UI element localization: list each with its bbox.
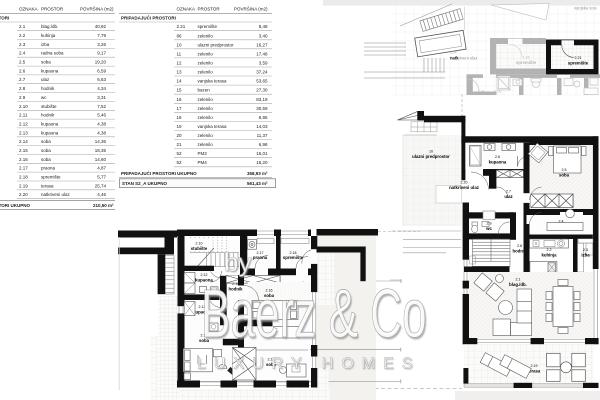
svg-text:15,20: 15,20 (256, 160, 268, 165)
svg-text:2.7: 2.7 (19, 77, 26, 82)
svg-text:PRIPADAJUĆI PROSTORI: PRIPADAJUĆI PROSTORI (121, 14, 176, 21)
svg-text:PM3: PM3 (198, 151, 208, 156)
svg-text:PM4: PM4 (198, 160, 208, 165)
svg-text:stubište: stubište (191, 246, 208, 251)
svg-text:3,26: 3,26 (97, 42, 106, 47)
svg-text:2.14: 2.14 (19, 139, 28, 144)
svg-text:ulaz: ulaz (41, 77, 50, 82)
svg-text:zelenilo: zelenilo (198, 61, 214, 66)
svg-text:2.18: 2.18 (19, 175, 28, 180)
svg-text:40,92: 40,92 (95, 24, 107, 29)
svg-text:1.11: 1.11 (478, 90, 484, 94)
svg-text:52: 52 (177, 151, 183, 156)
svg-text:zelenilo: zelenilo (198, 106, 214, 111)
svg-text:bazen: bazen (198, 88, 211, 93)
svg-text:1.1/2: 1.1/2 (494, 90, 502, 94)
svg-text:7,52: 7,52 (97, 104, 106, 109)
svg-text:2.10: 2.10 (19, 104, 28, 109)
svg-text:4,46: 4,46 (97, 192, 106, 197)
svg-text:5,77: 5,77 (97, 175, 106, 180)
svg-text:2.15: 2.15 (19, 148, 28, 153)
svg-text:spremište: spremište (283, 255, 304, 260)
svg-text:9,17: 9,17 (97, 51, 106, 56)
svg-text:17: 17 (177, 106, 183, 111)
svg-text:3,31: 3,31 (97, 95, 106, 100)
svg-text:14,60: 14,60 (95, 157, 107, 162)
svg-text:17,48: 17,48 (256, 51, 268, 56)
svg-text:18: 18 (177, 115, 183, 120)
svg-text:210,50 m²: 210,50 m² (93, 203, 114, 208)
svg-text:blag./db.: blag./db. (509, 282, 527, 287)
svg-text:vanjska terasa: vanjska terasa (198, 79, 228, 84)
svg-text:kuhinja: kuhinja (41, 33, 56, 38)
svg-text:4,34: 4,34 (97, 86, 106, 91)
svg-text:1.14: 1.14 (450, 51, 457, 55)
svg-text:soba: soba (41, 148, 51, 153)
svg-text:2.18: 2.18 (290, 251, 297, 255)
svg-text:1.15: 1.15 (523, 56, 530, 60)
svg-text:PROSTORI: PROSTORI (0, 16, 9, 21)
svg-text:2.17: 2.17 (257, 251, 264, 255)
svg-text:soba: soba (41, 157, 51, 162)
svg-text:4,38: 4,38 (97, 130, 106, 135)
svg-text:6,59: 6,59 (97, 68, 106, 73)
svg-text:2.17: 2.17 (19, 166, 28, 171)
svg-text:2.3: 2.3 (19, 42, 26, 47)
svg-text:2.2: 2.2 (19, 33, 26, 38)
svg-text:stubište: stubište (41, 104, 57, 109)
svg-text:11: 11 (177, 51, 182, 56)
svg-text:PROSTORI UKUPNO: PROSTORI UKUPNO (0, 203, 30, 208)
svg-text:5,46: 5,46 (97, 113, 106, 118)
svg-text:16: 16 (177, 97, 183, 102)
svg-text:izba: izba (581, 252, 590, 257)
svg-text:2.4: 2.4 (19, 51, 26, 56)
svg-text:zelenilo: zelenilo (198, 115, 214, 120)
svg-text:soba: soba (41, 60, 51, 65)
svg-text:kupaona: kupaona (41, 68, 59, 73)
svg-text:2.19: 2.19 (19, 183, 28, 188)
svg-text:2.13: 2.13 (19, 130, 28, 135)
svg-text:14: 14 (177, 79, 183, 84)
svg-text:2.6: 2.6 (19, 68, 26, 73)
svg-text:zelenilo: zelenilo (198, 133, 214, 138)
svg-text:2.10: 2.10 (196, 242, 203, 246)
svg-text:4,38: 4,38 (97, 121, 106, 126)
svg-text:2.1: 2.1 (516, 278, 521, 282)
svg-text:21: 21 (177, 142, 183, 147)
svg-text:spremište: spremište (198, 24, 218, 29)
svg-text:15,01: 15,01 (256, 151, 268, 156)
svg-text:PRIPADAJUĆI PROSTORI UKUPNO: PRIPADAJUĆI PROSTORI UKUPNO (121, 169, 197, 176)
svg-text:kupaona: kupaona (41, 121, 59, 126)
svg-text:soba: soba (41, 139, 51, 144)
svg-text:2.19: 2.19 (531, 364, 538, 368)
svg-text:3,40: 3,40 (259, 33, 268, 38)
svg-text:hodnik: hodnik (41, 86, 55, 91)
svg-text:11,37: 11,37 (257, 133, 268, 138)
svg-text:PROSTOR: PROSTOR (198, 7, 221, 12)
svg-text:2.20: 2.20 (19, 192, 28, 197)
svg-text:8,48: 8,48 (259, 24, 268, 29)
svg-text:ulaz: ulaz (504, 194, 512, 199)
svg-text:14,03: 14,03 (256, 124, 268, 129)
svg-text:POVRŠINA (m2): POVRŠINA (m2) (234, 6, 268, 12)
svg-text:soba: soba (559, 172, 570, 177)
svg-text:kupaona: kupaona (489, 159, 507, 164)
svg-text:19: 19 (177, 124, 183, 129)
svg-text:2.8: 2.8 (19, 86, 26, 91)
svg-text:2.9: 2.9 (19, 95, 26, 100)
svg-text:zelenilo: zelenilo (198, 142, 214, 147)
svg-text:13: 13 (177, 70, 183, 75)
svg-text:4,87: 4,87 (97, 166, 106, 171)
svg-text:16,27: 16,27 (256, 42, 268, 47)
svg-text:LUXURY HOMES: LUXURY HOMES (197, 356, 420, 373)
svg-text:2.21: 2.21 (575, 56, 582, 60)
svg-text:2.16: 2.16 (19, 157, 28, 162)
svg-text:OZNAKA: OZNAKA (177, 7, 196, 12)
svg-text:radna soba: radna soba (41, 51, 64, 56)
svg-text:15: 15 (177, 88, 183, 93)
svg-text:30,59: 30,59 (256, 106, 268, 111)
svg-text:OZNAKA: OZNAKA (19, 7, 38, 12)
svg-text:86: 86 (177, 33, 183, 38)
svg-text:Baerz & Co: Baerz & Co (201, 276, 427, 352)
svg-text:spremište: spremište (41, 175, 61, 180)
svg-text:praona: praona (41, 166, 56, 171)
svg-text:blag./db.: blag./db. (41, 24, 58, 29)
svg-text:by: by (224, 247, 251, 277)
svg-text:2.6: 2.6 (495, 155, 500, 159)
svg-text:2.8: 2.8 (517, 244, 522, 248)
svg-text:6,98: 6,98 (259, 142, 268, 147)
svg-text:hodnik: hodnik (41, 113, 55, 118)
svg-text:2.21: 2.21 (177, 24, 186, 29)
svg-text:ulazni predprostor: ulazni predprostor (412, 154, 450, 159)
svg-text:2.3: 2.3 (583, 248, 588, 252)
svg-text:2.9: 2.9 (487, 222, 492, 226)
svg-text:358,93 m²: 358,93 m² (247, 171, 268, 176)
svg-text:zelenilo: zelenilo (198, 70, 214, 75)
svg-text:terasa: terasa (41, 183, 54, 188)
svg-text:spremište: spremište (516, 60, 537, 65)
svg-text:2.1: 2.1 (19, 24, 26, 29)
svg-text:2.11: 2.11 (19, 113, 28, 118)
svg-text:2.20: 2.20 (461, 181, 468, 185)
svg-text:83,19: 83,19 (256, 97, 268, 102)
svg-text:25,74: 25,74 (95, 183, 107, 188)
svg-text:zelenilo: zelenilo (198, 97, 214, 102)
svg-text:12: 12 (177, 61, 183, 66)
svg-text:izba: izba (41, 42, 50, 47)
svg-text:19,20: 19,20 (95, 60, 107, 65)
svg-text:vanjska terasa: vanjska terasa (198, 124, 228, 129)
svg-text:ulazni predprostor: ulazni predprostor (198, 42, 235, 47)
svg-text:10: 10 (429, 150, 433, 154)
svg-text:14,36: 14,36 (95, 139, 107, 144)
svg-text:37,24: 37,24 (256, 70, 268, 75)
svg-text:2.5: 2.5 (562, 168, 567, 172)
svg-text:POVRŠINA (m2): POVRŠINA (m2) (80, 6, 114, 12)
svg-text:natkriveni ulaz: natkriveni ulaz (41, 192, 71, 197)
svg-text:20: 20 (177, 133, 183, 138)
svg-text:zelenilo: zelenilo (198, 51, 214, 56)
svg-text:spremište: spremište (568, 60, 589, 65)
svg-text:27,30: 27,30 (256, 88, 268, 93)
svg-text:10: 10 (177, 42, 183, 47)
svg-text:8,95: 8,95 (259, 115, 268, 120)
svg-text:2.5: 2.5 (19, 60, 26, 65)
svg-text:6,63: 6,63 (97, 77, 106, 82)
svg-text:wc: wc (41, 95, 47, 100)
svg-text:natkriveni ulaz: natkriveni ulaz (450, 56, 477, 61)
svg-text:PROSTOR: PROSTOR (41, 7, 64, 12)
svg-text:18,35: 18,35 (95, 148, 107, 153)
svg-text:STAN S2_A UKUPNO: STAN S2_A UKUPNO (122, 181, 168, 186)
svg-text:2.2: 2.2 (547, 248, 552, 252)
svg-text:kupaona: kupaona (41, 130, 59, 135)
svg-text:7,79: 7,79 (97, 33, 106, 38)
svg-text:53,65: 53,65 (256, 79, 268, 84)
svg-text:natkriveni ulaz: natkriveni ulaz (449, 185, 479, 190)
svg-text:kuhinja: kuhinja (541, 252, 557, 257)
svg-text:2.12: 2.12 (19, 121, 28, 126)
svg-text:561,43 m²: 561,43 m² (247, 181, 268, 186)
svg-text:wc: wc (485, 226, 492, 231)
svg-text:zelenilo: zelenilo (198, 33, 214, 38)
svg-text:3,59: 3,59 (259, 61, 268, 66)
svg-text:vanjska tera: vanjska tera (574, 6, 597, 11)
svg-text:52: 52 (177, 160, 183, 165)
